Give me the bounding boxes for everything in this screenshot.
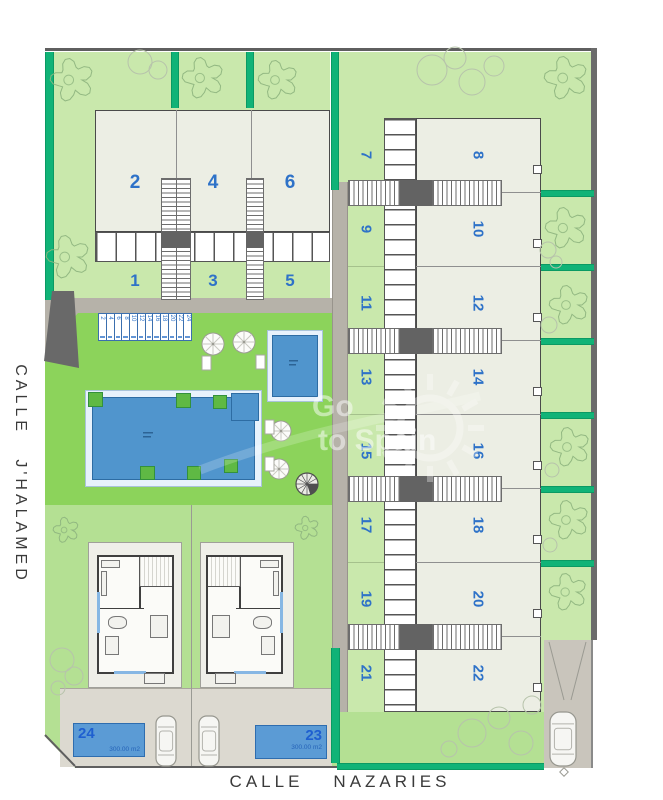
garden-label-17: 17	[358, 517, 375, 534]
small-pool	[272, 335, 318, 397]
garden-label-3: 3	[208, 271, 217, 291]
porch-step	[144, 673, 164, 683]
stair-run	[432, 624, 502, 650]
kitchen-counter	[101, 560, 120, 568]
hedge-garden-divider	[541, 412, 594, 419]
balcony-notch	[533, 239, 542, 248]
parking-stall: 16	[153, 314, 161, 340]
plot-23-number: 23	[305, 728, 322, 743]
garden-strip-divider	[348, 266, 384, 267]
garden-label-7: 7	[358, 151, 375, 159]
unit-label-8: 8	[470, 151, 487, 159]
parking-stall: 2	[99, 314, 107, 340]
kitchen-column	[101, 571, 107, 596]
bathroom	[208, 557, 241, 587]
unit-label-16: 16	[470, 443, 487, 460]
north-boundary	[45, 48, 597, 51]
site-plan: 24681012141618202224 24 300.00 m2 23 300…	[0, 0, 663, 800]
unit-label-10: 10	[470, 221, 487, 238]
stair-run	[432, 328, 502, 354]
parking-stall-number: 4	[107, 316, 113, 319]
parking-stall-number: 18	[161, 315, 167, 322]
planter	[176, 393, 191, 408]
balcony-notch	[533, 461, 542, 470]
garden-label-19: 19	[358, 591, 375, 608]
kitchen-column	[273, 571, 279, 596]
parking-stall: 20	[169, 314, 177, 340]
villa-1	[97, 555, 174, 674]
window-strip	[280, 592, 283, 633]
plot-23: 23 300.00 m2	[255, 725, 327, 759]
parking-stall: 24	[184, 314, 191, 340]
gate-marker	[560, 768, 568, 776]
hedge-garden-divider	[541, 338, 594, 345]
parking-stall-number: 2	[99, 316, 105, 319]
interior-wall	[99, 608, 144, 610]
stair-landing	[161, 231, 191, 248]
window-strip	[234, 671, 266, 674]
bed	[150, 615, 168, 638]
hedge-divider-1	[171, 52, 179, 108]
balcony-notch	[533, 313, 542, 322]
hedge-south	[337, 763, 544, 770]
balcony-notch	[533, 387, 542, 396]
stall-dimension-text	[162, 336, 167, 338]
villa-2	[206, 555, 283, 674]
dining-table	[253, 616, 272, 630]
building-right-block	[416, 118, 541, 712]
stair-run	[432, 476, 502, 502]
parking-stall-number: 14	[146, 315, 152, 322]
stall-dimension-text	[178, 336, 183, 338]
hedge-west	[45, 52, 54, 300]
unit-label-18: 18	[470, 517, 487, 534]
watermark-text-2: to Spain	[318, 424, 436, 458]
hedge-garden-divider	[541, 486, 594, 493]
window-strip	[114, 671, 146, 674]
balcony-notch	[533, 683, 542, 692]
parking-stall: 4	[107, 314, 115, 340]
stall-dimension-text	[139, 336, 144, 338]
parking-stall-number: 20	[169, 315, 175, 322]
east-boundary-thin	[591, 640, 593, 768]
parking-stall: 22	[177, 314, 185, 340]
interior-wall	[236, 608, 281, 610]
parking-stall: 14	[146, 314, 154, 340]
building-left-block	[95, 110, 330, 232]
stair-landing	[400, 624, 432, 650]
interior-wall	[139, 587, 141, 609]
stair-run	[348, 476, 400, 502]
dining-table	[108, 616, 127, 630]
garden-strip-divider	[348, 562, 384, 563]
internal-road	[45, 298, 346, 313]
parking-stall-number: 6	[115, 316, 121, 319]
south-boundary	[75, 766, 337, 768]
unit-divider	[251, 110, 252, 178]
balcony-notch	[533, 165, 542, 174]
unit-label-2: 2	[130, 172, 141, 194]
parking-stall-number: 8	[123, 316, 129, 319]
unit-label-6: 6	[285, 172, 296, 194]
hedge-villa-east	[331, 648, 340, 763]
plot-24: 24 300.00 m2	[73, 723, 145, 757]
kitchen-counter	[260, 560, 279, 568]
stall-dimension-text	[108, 336, 113, 338]
parking-stall: 12	[138, 314, 146, 340]
stall-dimension-text	[100, 336, 105, 338]
balcony-notch	[533, 535, 542, 544]
stall-dimension-text	[123, 336, 128, 338]
parking-stall: 8	[122, 314, 130, 340]
terrace-column	[384, 118, 416, 712]
garden-label-21: 21	[358, 665, 375, 682]
parking-stall-number: 10	[130, 315, 136, 322]
site-plan-page: CALLE J'HALAMED CALLE NAZARIES	[0, 0, 663, 800]
garden-label-1: 1	[130, 271, 139, 291]
plot-24-number: 24	[78, 726, 95, 741]
unit-label-14: 14	[470, 369, 487, 386]
parking-stall-number: 22	[177, 315, 183, 322]
planter	[213, 395, 227, 409]
stair-run	[348, 328, 400, 354]
hedge-garden-divider	[541, 190, 594, 197]
stair-run	[348, 180, 400, 206]
parking-stall-number: 24	[185, 315, 191, 322]
stair-run	[348, 624, 400, 650]
unit-label-20: 20	[470, 591, 487, 608]
stair-landing	[400, 180, 432, 206]
unit-label-4: 4	[208, 172, 219, 194]
pool-lawn-left	[45, 352, 75, 505]
planter	[88, 392, 103, 407]
plot-24-area: 300.00 m2	[109, 747, 140, 754]
road-mouth	[45, 313, 78, 352]
interior-wall	[239, 587, 241, 609]
entry-driveway	[544, 640, 591, 768]
parking-stall-number: 16	[154, 315, 160, 322]
sofa	[105, 636, 120, 654]
jacuzzi	[231, 393, 259, 421]
stair-landing	[246, 231, 264, 248]
unit-label-12: 12	[470, 295, 487, 312]
garden-label-11: 11	[358, 295, 375, 311]
sofa	[261, 636, 276, 654]
planter	[187, 466, 201, 480]
watermark-text-1: Go	[312, 390, 354, 424]
parking-stall-number: 12	[138, 315, 144, 322]
hedge-garden-divider	[541, 264, 594, 271]
parking-stall: 10	[130, 314, 138, 340]
garden-label-9: 9	[358, 225, 375, 233]
stair-landing	[400, 476, 432, 502]
hedge-divider-2	[246, 52, 254, 108]
bathroom	[139, 557, 172, 587]
right-bottom-garden	[337, 712, 544, 763]
terrace-row	[95, 232, 330, 262]
stall-dimension-text	[170, 336, 175, 338]
garden-label-5: 5	[285, 271, 294, 291]
unit-divider	[416, 266, 541, 267]
stall-dimension-text	[147, 336, 152, 338]
stair-run	[432, 180, 502, 206]
unit-label-22: 22	[470, 665, 487, 682]
plot-divider	[191, 505, 192, 766]
stall-dimension-text	[185, 336, 190, 338]
balcony-notch	[533, 609, 542, 618]
parking-stall: 18	[161, 314, 169, 340]
stall-dimension-text	[154, 336, 159, 338]
porch-step	[215, 673, 235, 683]
stair-landing	[400, 328, 432, 354]
hedge-mid	[331, 52, 339, 190]
bed	[212, 615, 230, 638]
window-strip	[97, 592, 100, 633]
unit-divider	[416, 562, 541, 563]
stall-dimension-text	[116, 336, 121, 338]
planter	[140, 466, 155, 480]
unit-divider	[176, 110, 177, 178]
parking-stall: 6	[115, 314, 123, 340]
parking-row: 24681012141618202224	[98, 313, 192, 341]
unit-divider	[416, 414, 541, 415]
stall-dimension-text	[131, 336, 136, 338]
hedge-garden-divider	[541, 560, 594, 567]
plot-23-area: 300.00 m2	[291, 745, 322, 752]
planter	[224, 459, 238, 473]
garden-label-13: 13	[358, 369, 375, 386]
